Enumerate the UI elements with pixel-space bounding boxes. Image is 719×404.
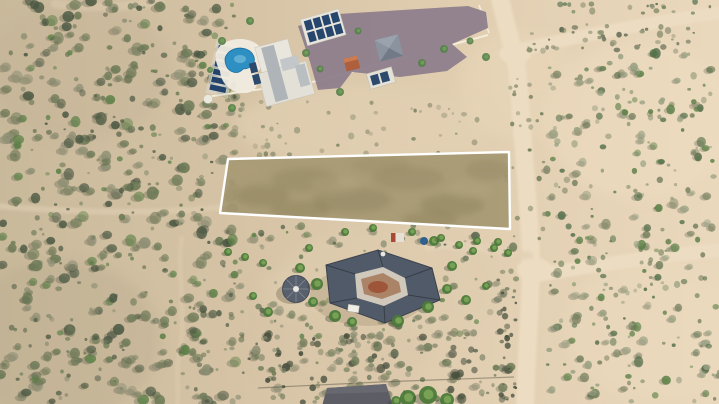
white-vehicle (347, 304, 359, 312)
palm-canopy-highlight (496, 239, 500, 243)
pool-shallow-end (234, 55, 246, 63)
small-shed (391, 233, 404, 242)
palm-canopy-highlight (410, 229, 414, 233)
palm-canopy-highlight (332, 312, 339, 319)
palm-canopy-highlight (404, 393, 413, 402)
palm-canopy-highlight (298, 265, 304, 271)
palm-canopy-highlight (425, 303, 432, 310)
palm-canopy-highlight (424, 390, 434, 400)
palm-canopy-highlight (445, 286, 451, 292)
palm-canopy-highlight (506, 250, 510, 254)
courtyard-red-tile (368, 281, 388, 293)
palm-canopy-highlight (266, 309, 272, 315)
palm-canopy-highlight (314, 280, 321, 287)
palm-canopy-highlight (492, 245, 496, 249)
palm-canopy-highlight (450, 263, 456, 269)
top-road-junction (499, 44, 531, 64)
palm-canopy-highlight (471, 248, 475, 252)
palm-canopy-highlight (371, 225, 375, 229)
palm-canopy-highlight (395, 317, 402, 324)
palm-canopy-highlight (311, 299, 317, 305)
aerial-photo (0, 0, 719, 404)
palm-canopy-highlight (394, 398, 400, 404)
palm-canopy-highlight (475, 238, 479, 242)
aerial-photo-canvas (0, 0, 719, 404)
palm-canopy-highlight (457, 242, 461, 246)
palapa-center-cap (293, 286, 299, 292)
palm-canopy-highlight (444, 396, 452, 404)
palm-canopy-highlight (439, 235, 443, 239)
palm-canopy-highlight (307, 245, 311, 249)
palm-canopy-highlight (261, 260, 265, 264)
palm-canopy-highlight (484, 283, 488, 287)
hex-roof-chimney (381, 252, 386, 257)
palm-canopy-highlight (251, 293, 255, 297)
palm-canopy-highlight (226, 249, 230, 253)
palm-canopy-highlight (350, 319, 356, 325)
shed-roof-red-panel (391, 233, 396, 242)
palm-canopy-highlight (243, 254, 247, 258)
bottom-road-junction (517, 258, 553, 282)
palm-canopy-highlight (343, 229, 347, 233)
white-dome-structure (204, 95, 213, 104)
palm-canopy-highlight (464, 297, 470, 303)
